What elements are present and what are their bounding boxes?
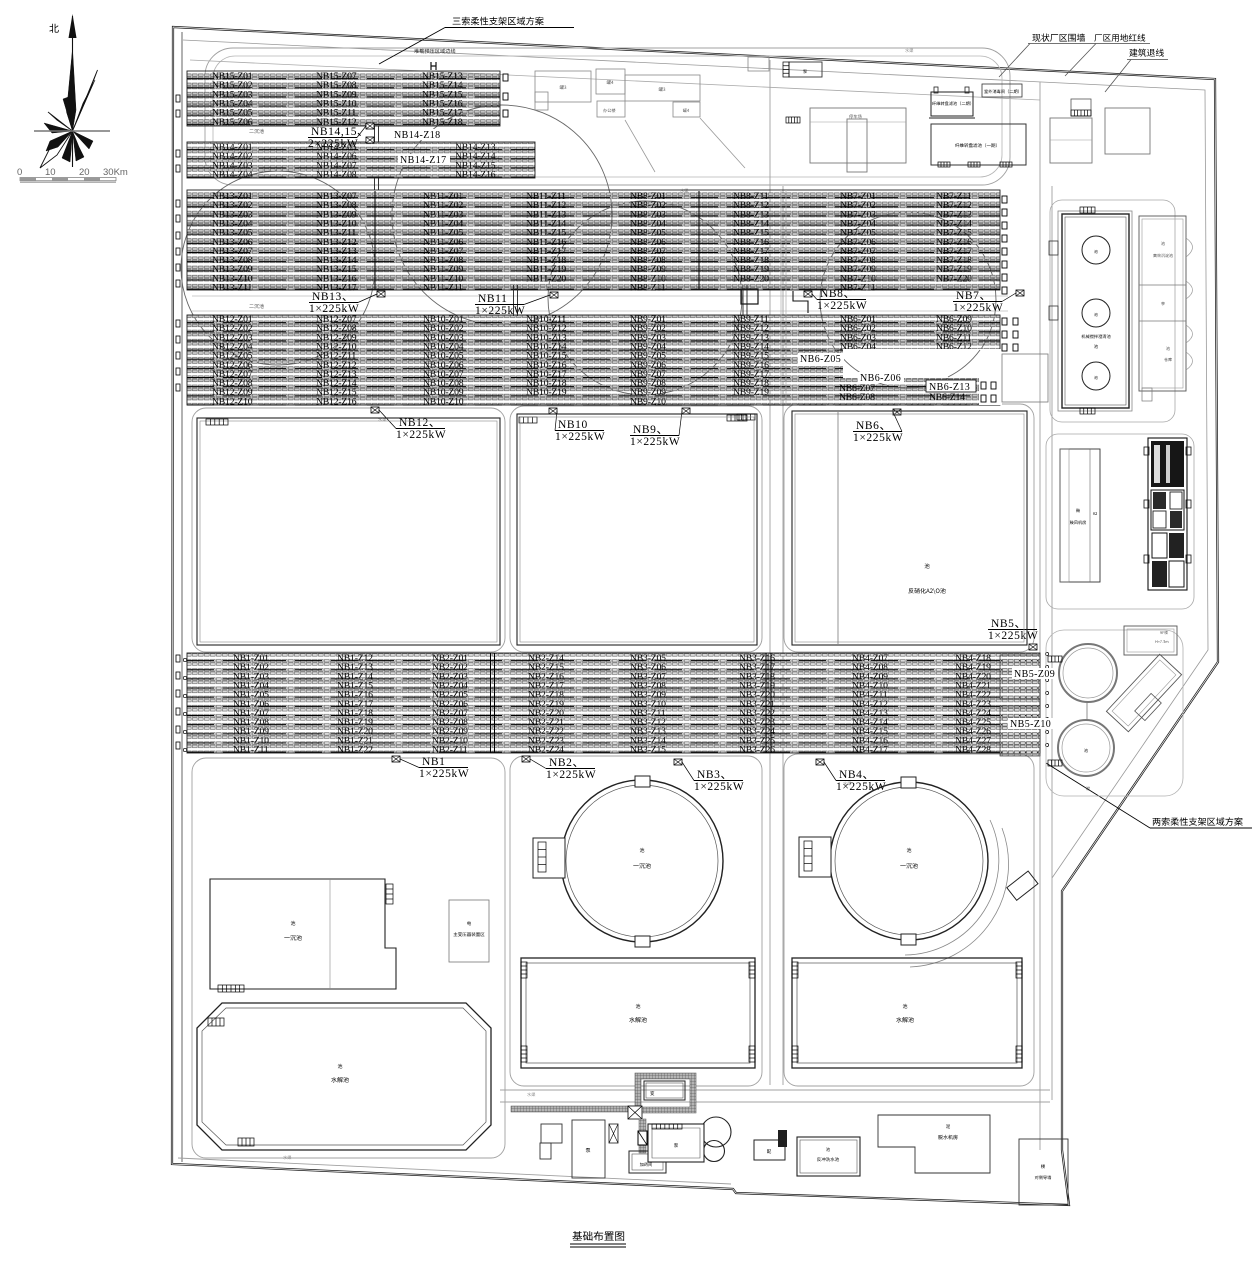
svg-text:NB13、: NB13、 (312, 291, 354, 303)
svg-text:NB14-Z04: NB14-Z04 (212, 169, 253, 180)
svg-text:10: 10 (45, 167, 56, 178)
svg-text:NB1-Z11: NB1-Z11 (233, 745, 269, 756)
svg-text:NB6、: NB6、 (856, 420, 892, 432)
svg-text:NB6-Z08: NB6-Z08 (839, 392, 875, 403)
svg-text:NB2-Z11: NB2-Z11 (432, 745, 468, 756)
svg-text:NB5-Z10: NB5-Z10 (1010, 719, 1051, 730)
svg-text:1×225kW: 1×225kW (309, 303, 359, 315)
svg-text:NB12-Z10: NB12-Z10 (212, 396, 253, 407)
svg-text:NB5-Z09: NB5-Z09 (1014, 669, 1055, 680)
svg-text:NB4-Z28: NB4-Z28 (955, 745, 991, 756)
svg-text:NB10-Z19: NB10-Z19 (526, 387, 567, 398)
svg-text:NB7、: NB7、 (956, 290, 992, 302)
svg-text:30Km: 30Km (103, 167, 128, 178)
svg-text:2×225kW: 2×225kW (308, 138, 358, 150)
svg-text:1×225kW: 1×225kW (555, 431, 605, 443)
svg-text:NB13-Z11: NB13-Z11 (212, 283, 252, 294)
svg-text:1×225kW: 1×225kW (953, 302, 1003, 314)
svg-text:20: 20 (79, 167, 90, 178)
svg-text:NB11: NB11 (478, 293, 507, 305)
svg-text:NB10-Z10: NB10-Z10 (423, 396, 464, 407)
svg-text:NB8、: NB8、 (820, 288, 856, 300)
svg-text:1×225kW: 1×225kW (396, 429, 446, 441)
svg-text:1×225kW: 1×225kW (419, 768, 469, 780)
svg-text:0: 0 (17, 167, 22, 178)
svg-text:1×225kW: 1×225kW (630, 436, 680, 448)
svg-text:NB14-Z16: NB14-Z16 (455, 169, 496, 180)
svg-text:NB6-Z06: NB6-Z06 (860, 373, 901, 384)
svg-text:NB2-Z24: NB2-Z24 (528, 745, 564, 756)
svg-text:1×225kW: 1×225kW (475, 305, 525, 317)
svg-text:NB15-Z06: NB15-Z06 (212, 117, 253, 128)
svg-text:1×225kW: 1×225kW (853, 432, 903, 444)
svg-text:NB9-Z19: NB9-Z19 (733, 387, 769, 398)
svg-text:NB1-Z22: NB1-Z22 (337, 745, 373, 756)
svg-text:NB11-Z20: NB11-Z20 (526, 273, 566, 284)
svg-text:NB11-Z11: NB11-Z11 (423, 283, 463, 294)
svg-text:NB3、: NB3、 (697, 769, 733, 781)
svg-text:NB4、: NB4、 (839, 769, 875, 781)
svg-text:NB5、: NB5、 (991, 618, 1027, 630)
svg-text:1×225kW: 1×225kW (817, 300, 867, 312)
svg-text:NB12、: NB12、 (399, 417, 441, 429)
svg-text:NB9、: NB9、 (633, 424, 669, 436)
svg-text:NB4-Z17: NB4-Z17 (852, 745, 888, 756)
svg-text:1×225kW: 1×225kW (546, 769, 596, 781)
svg-text:NB9-Z10: NB9-Z10 (630, 396, 666, 407)
svg-text:NB6-Z14: NB6-Z14 (929, 392, 965, 403)
svg-text:NB14-Z08: NB14-Z08 (316, 169, 357, 180)
svg-text:NB1: NB1 (422, 756, 446, 768)
svg-text:NB14-Z18: NB14-Z18 (394, 130, 441, 141)
svg-text:1×225kW: 1×225kW (836, 781, 886, 793)
svg-text:NB15-Z18: NB15-Z18 (422, 117, 463, 128)
svg-text:NB7-Z20: NB7-Z20 (936, 273, 972, 284)
svg-text:NB3-Z15: NB3-Z15 (630, 745, 666, 756)
svg-text:1×225kW: 1×225kW (988, 630, 1038, 642)
svg-text:NB8-Z20: NB8-Z20 (733, 273, 769, 284)
svg-text:NB8-Z11: NB8-Z11 (630, 283, 666, 294)
svg-text:NB6-Z13: NB6-Z13 (929, 382, 970, 393)
svg-text:NB6-Z05: NB6-Z05 (800, 354, 841, 365)
svg-text:NB2、: NB2、 (549, 757, 585, 769)
svg-text:NB3-Z26: NB3-Z26 (739, 745, 775, 756)
svg-text:NB10: NB10 (558, 419, 588, 431)
svg-text:NB14,15、: NB14,15、 (311, 126, 369, 138)
svg-text:NB12-Z16: NB12-Z16 (316, 396, 357, 407)
svg-text:NB14-Z17: NB14-Z17 (400, 155, 447, 166)
svg-text:1×225kW: 1×225kW (694, 781, 744, 793)
